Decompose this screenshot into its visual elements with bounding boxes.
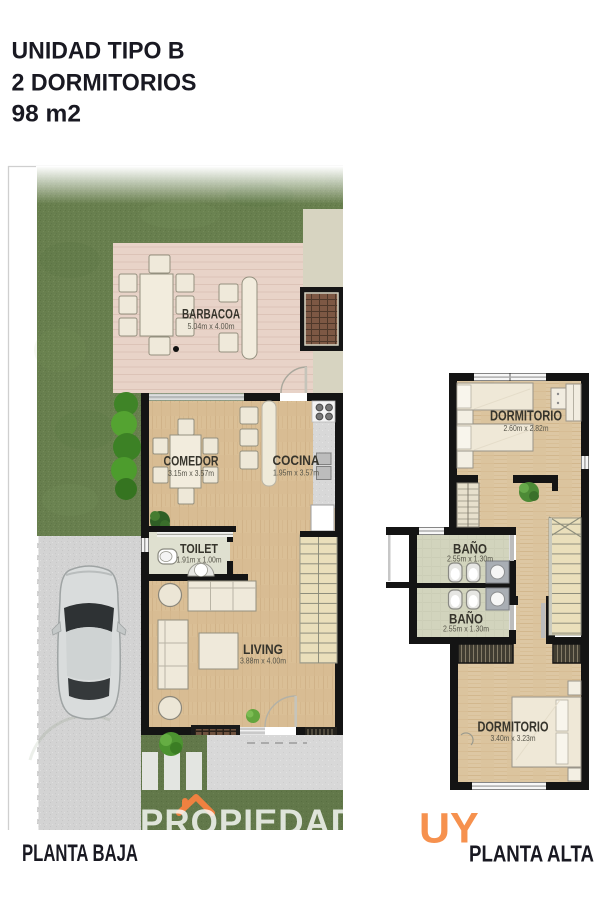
svg-text:2.60m x 2.82m: 2.60m x 2.82m	[504, 424, 549, 433]
svg-text:PLANTA ALTA: PLANTA ALTA	[469, 841, 594, 867]
svg-text:3.88m x 4.00m: 3.88m x 4.00m	[240, 657, 286, 666]
svg-text:PLANTA BAJA: PLANTA BAJA	[22, 840, 138, 867]
svg-text:COCINA: COCINA	[273, 453, 320, 468]
svg-text:3.40m x 3.23m: 3.40m x 3.23m	[491, 734, 536, 743]
svg-text:1.91m x 1.00m: 1.91m x 1.00m	[177, 556, 222, 565]
svg-text:UNIDAD TIPO B: UNIDAD TIPO B	[12, 38, 185, 65]
svg-text:DORMITORIO: DORMITORIO	[490, 408, 562, 425]
svg-text:LIVING: LIVING	[243, 642, 283, 657]
svg-text:3.15m x 3.57m: 3.15m x 3.57m	[168, 469, 214, 478]
svg-text:BARBACOA: BARBACOA	[182, 307, 240, 322]
svg-text:PROPIEDADES: PROPIEDADES	[140, 803, 406, 842]
svg-text:2 DORMITORIOS: 2 DORMITORIOS	[12, 70, 197, 97]
svg-text:2.55m x 1.30m: 2.55m x 1.30m	[447, 555, 493, 564]
svg-text:98 m2: 98 m2	[12, 101, 81, 128]
svg-text:1.95m x 3.57m: 1.95m x 3.57m	[273, 469, 319, 478]
svg-text:5.04m x 4.00m: 5.04m x 4.00m	[188, 322, 235, 331]
svg-text:TOILET: TOILET	[180, 542, 218, 556]
svg-text:COMEDOR: COMEDOR	[164, 454, 219, 469]
svg-text:DORMITORIO: DORMITORIO	[478, 719, 549, 736]
svg-text:2.55m x 1.30m: 2.55m x 1.30m	[443, 625, 489, 634]
